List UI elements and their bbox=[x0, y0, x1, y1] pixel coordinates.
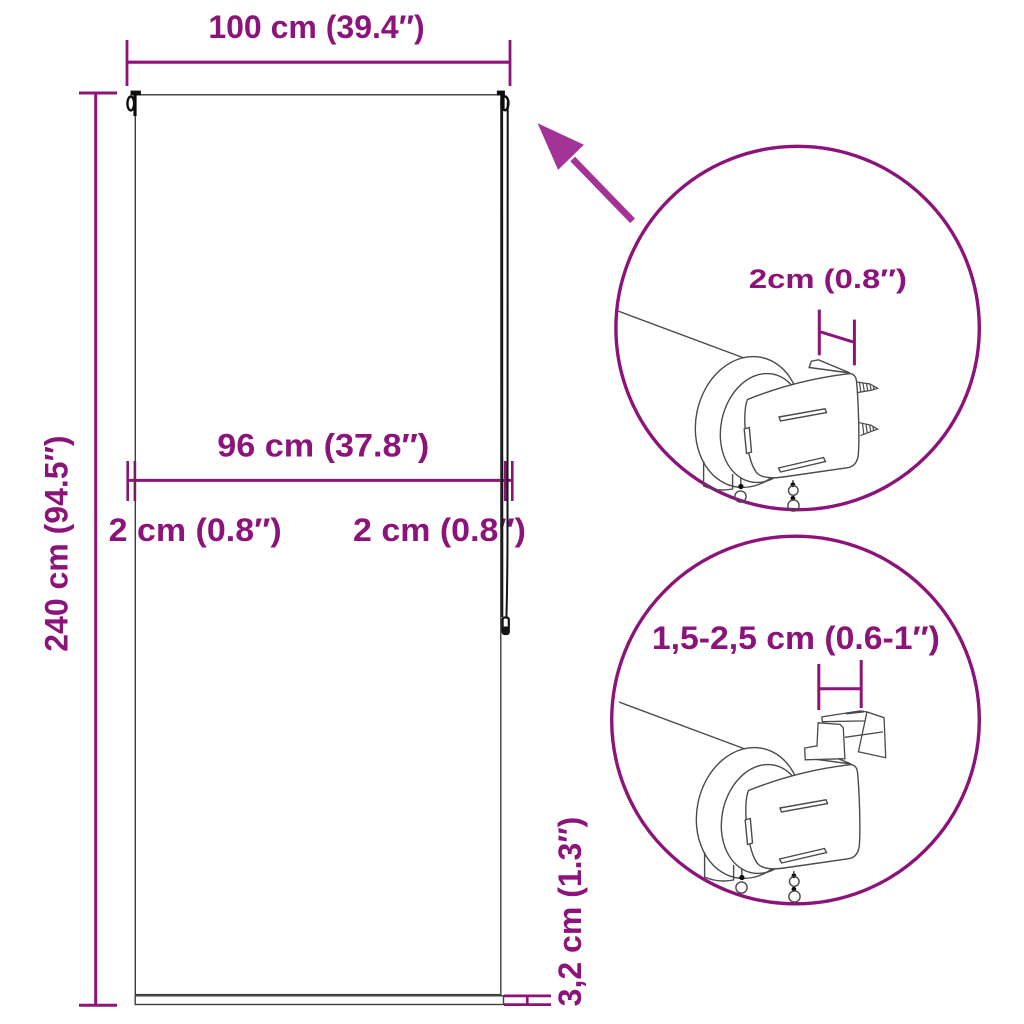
svg-text:2 cm (0.8″): 2 cm (0.8″) bbox=[353, 512, 526, 548]
svg-text:1,5-2,5 cm (0.6-1″): 1,5-2,5 cm (0.6-1″) bbox=[652, 620, 940, 656]
svg-text:100 cm (39.4″): 100 cm (39.4″) bbox=[208, 9, 424, 45]
svg-text:2cm (0.8″): 2cm (0.8″) bbox=[749, 264, 907, 294]
svg-text:96 cm (37.8″): 96 cm (37.8″) bbox=[217, 428, 429, 464]
svg-text:240 cm (94.5″): 240 cm (94.5″) bbox=[39, 435, 75, 651]
svg-text:3,2 cm (1.3″): 3,2 cm (1.3″) bbox=[552, 817, 588, 1007]
